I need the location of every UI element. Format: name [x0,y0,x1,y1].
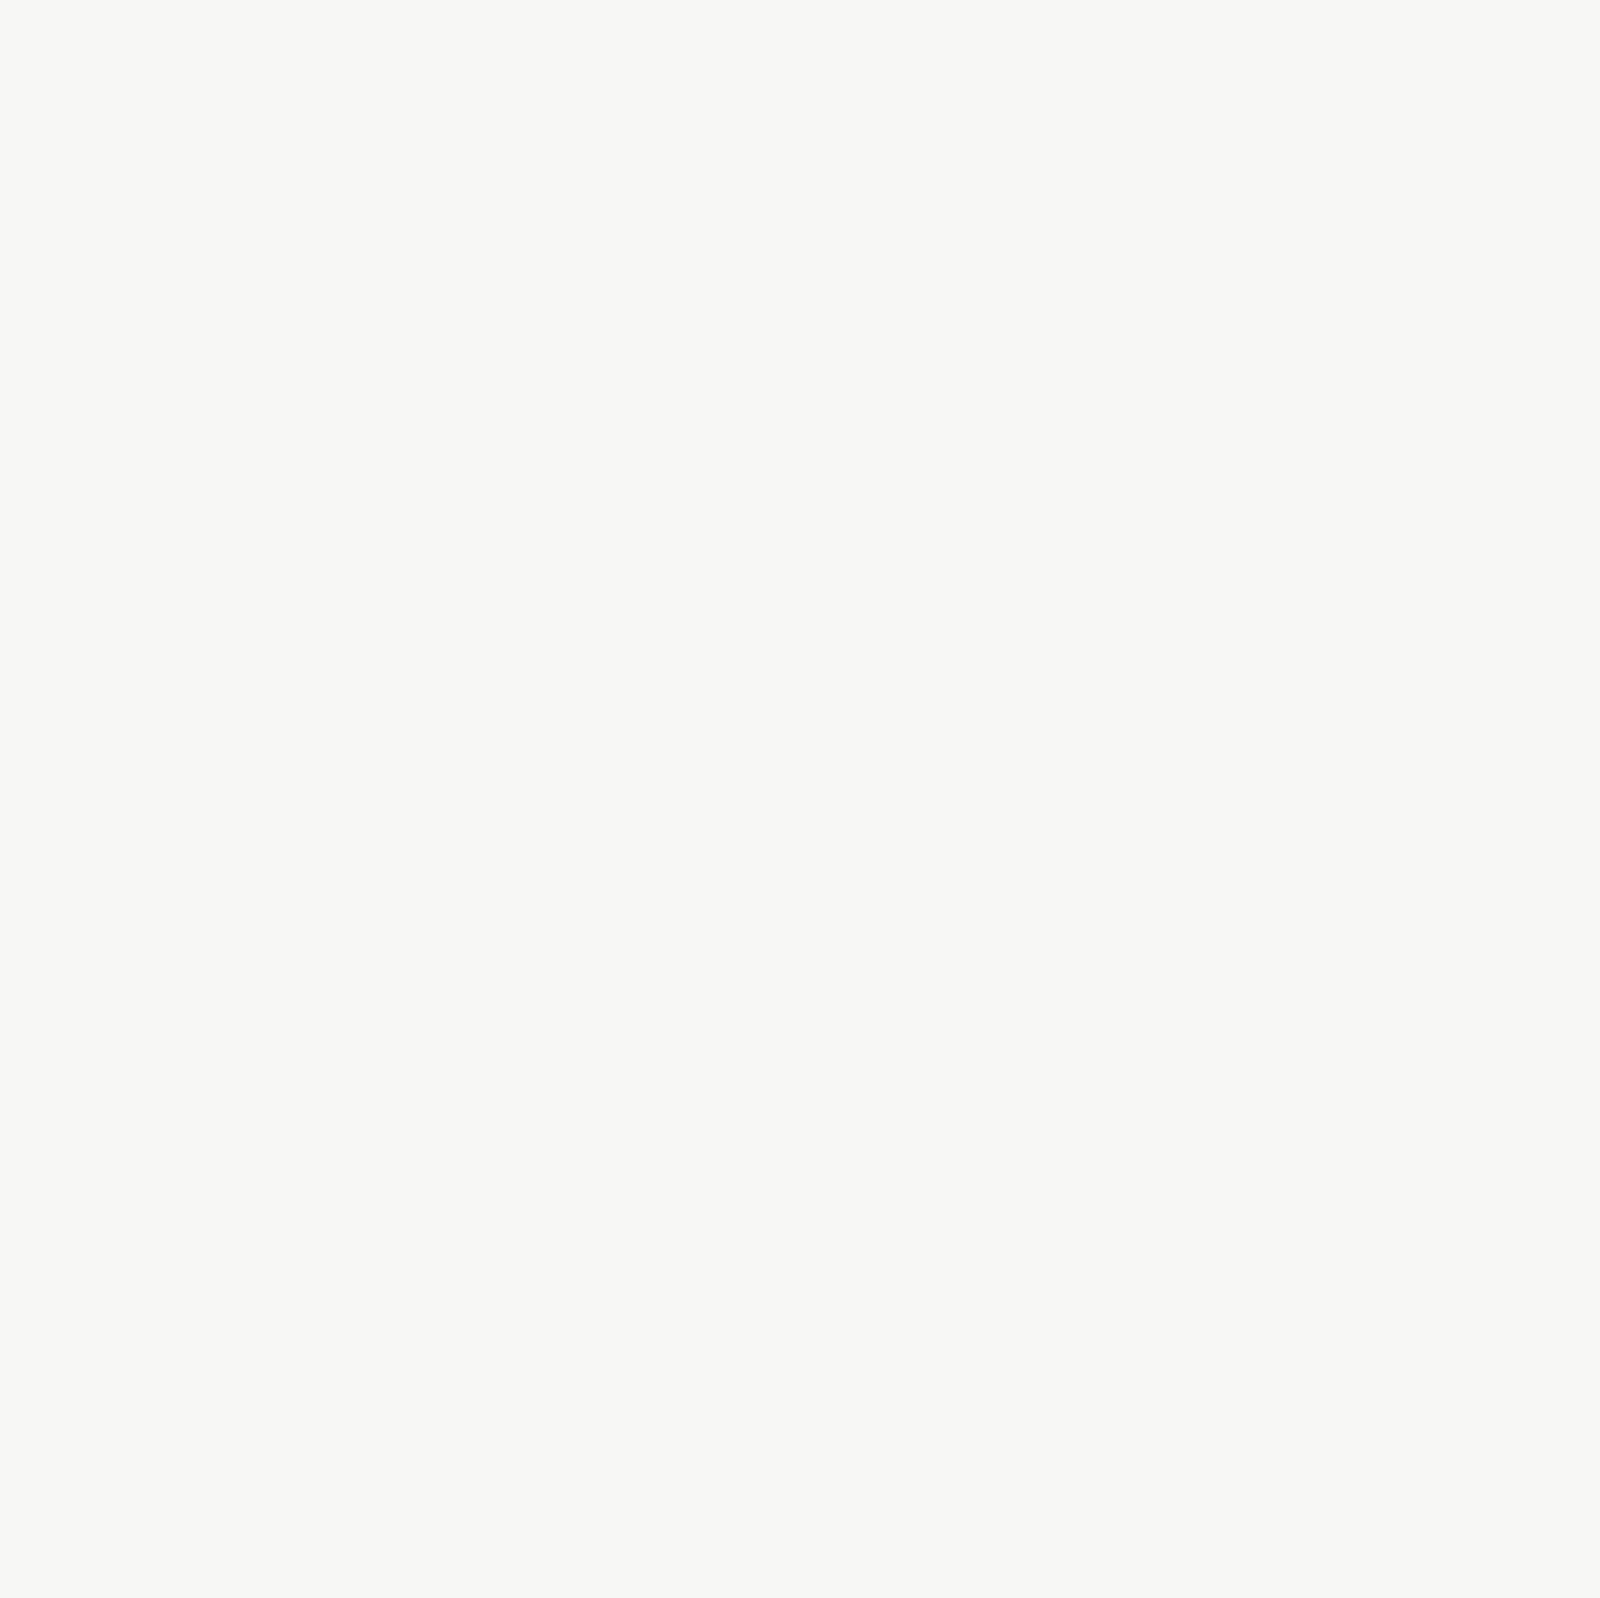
map-canvas [0,0,1600,1598]
masterplan-map [0,0,1600,1598]
map-background [0,0,1600,1598]
